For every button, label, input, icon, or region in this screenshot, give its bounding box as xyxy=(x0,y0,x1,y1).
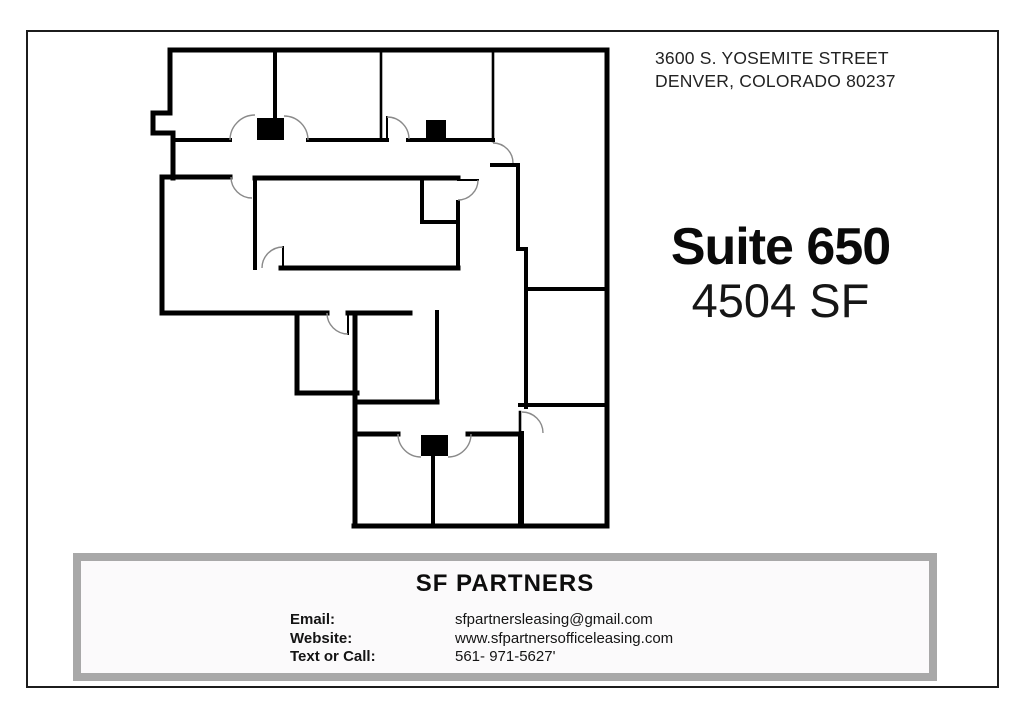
thin-walls xyxy=(381,50,520,434)
door-marker xyxy=(426,120,446,139)
phone-label: Text or Call: xyxy=(290,648,455,667)
contact-row-phone: Text or Call: 561- 971-5627' xyxy=(290,648,929,667)
address-line-1: 3600 S. YOSEMITE STREET xyxy=(655,47,896,70)
suite-info: Suite 650 4504 SF xyxy=(633,220,928,326)
company-name: SF PARTNERS xyxy=(81,570,929,598)
phone-value: 561- 971-5627' xyxy=(455,648,555,667)
contact-row-email: Email: sfpartnersleasing@gmail.com xyxy=(290,611,929,630)
wall-group xyxy=(153,50,607,526)
contact-row-website: Website: www.sfpartnersofficeleasing.com xyxy=(290,630,929,649)
email-label: Email: xyxy=(290,611,455,630)
suite-area: 4504 SF xyxy=(633,275,928,327)
door-marker xyxy=(257,118,284,140)
contact-panel: SF PARTNERS Email: sfpartnersleasing@gma… xyxy=(73,553,937,681)
website-value: www.sfpartnersofficeleasing.com xyxy=(455,630,673,649)
contact-rows: Email: sfpartnersleasing@gmail.com Websi… xyxy=(290,611,929,667)
address-line-2: DENVER, COLORADO 80237 xyxy=(655,70,896,93)
email-value: sfpartnersleasing@gmail.com xyxy=(455,611,653,630)
suite-title: Suite 650 xyxy=(633,220,928,275)
property-address: 3600 S. YOSEMITE STREET DENVER, COLORADO… xyxy=(655,47,896,93)
flyer-page: 3600 S. YOSEMITE STREET DENVER, COLORADO… xyxy=(0,0,1024,719)
door-leaves xyxy=(283,117,478,334)
door-marker xyxy=(421,435,448,456)
website-label: Website: xyxy=(290,630,455,649)
